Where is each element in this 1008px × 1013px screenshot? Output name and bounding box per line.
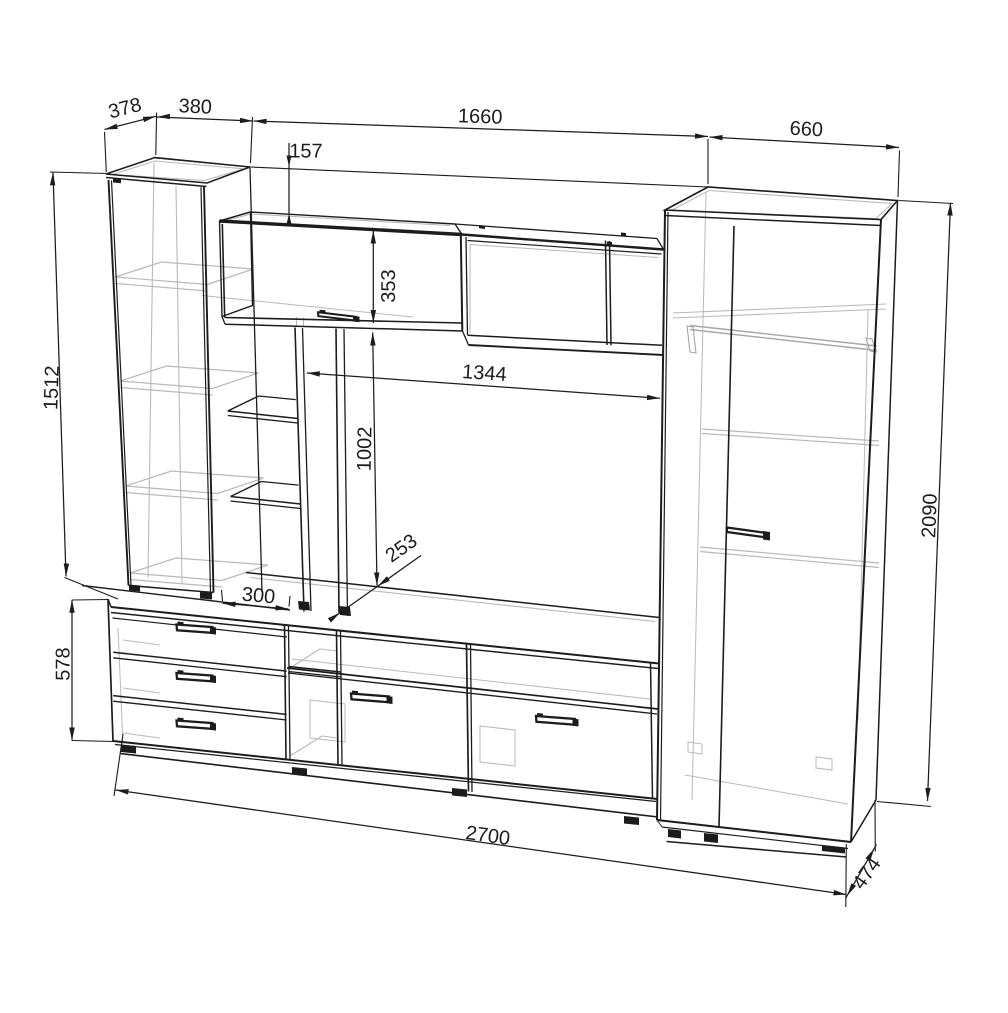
svg-text:300: 300 [241,584,276,609]
svg-text:157: 157 [289,141,322,163]
svg-text:1344: 1344 [461,361,507,386]
svg-text:1002: 1002 [354,426,377,471]
svg-text:2090: 2090 [918,493,942,538]
svg-text:380: 380 [178,95,212,118]
svg-text:353: 353 [378,269,400,302]
svg-text:578: 578 [53,647,75,680]
svg-text:1660: 1660 [458,105,503,128]
svg-text:660: 660 [789,118,824,142]
svg-text:1512: 1512 [40,365,63,410]
